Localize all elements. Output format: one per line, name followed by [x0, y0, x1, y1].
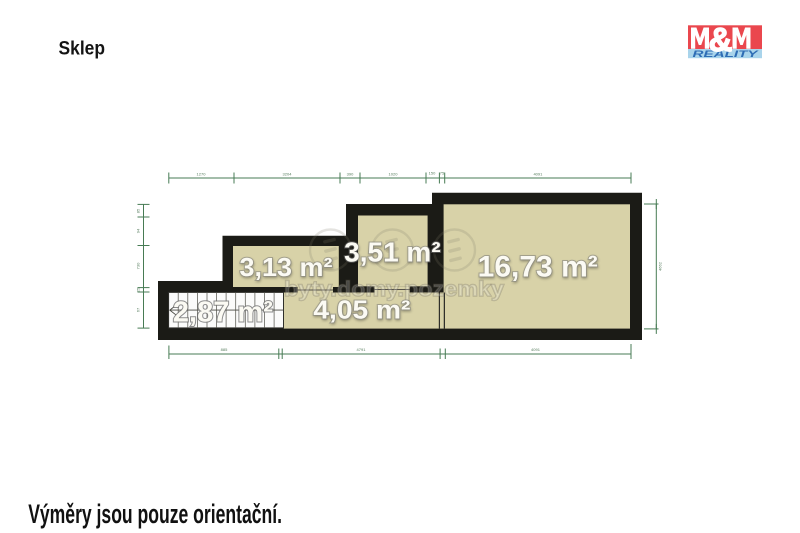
svg-text:730: 730 — [136, 262, 141, 269]
svg-text:Výměry jsou pouze orientační.: Výměry jsou pouze orientační. — [28, 499, 282, 529]
svg-text:4091: 4091 — [533, 172, 543, 177]
svg-text:4091: 4091 — [531, 347, 541, 352]
svg-text:1270: 1270 — [197, 172, 207, 177]
svg-text:390: 390 — [347, 172, 354, 177]
svg-text:&: & — [709, 21, 733, 58]
svg-text:67: 67 — [136, 307, 141, 312]
svg-text:2,87 m²: 2,87 m² — [173, 296, 273, 328]
svg-text:150: 150 — [429, 171, 436, 176]
svg-text:3204: 3204 — [283, 172, 293, 177]
svg-text:4791: 4791 — [357, 347, 367, 352]
svg-text:85: 85 — [136, 208, 141, 213]
svg-text:25: 25 — [136, 287, 141, 292]
svg-text:Sklep: Sklep — [59, 37, 106, 59]
svg-text:3,13 m²: 3,13 m² — [240, 252, 333, 282]
svg-text:4662: 4662 — [658, 261, 663, 271]
svg-text:885: 885 — [221, 347, 228, 352]
svg-text:1020: 1020 — [389, 172, 399, 177]
svg-text:75: 75 — [440, 171, 445, 176]
svg-text:16,73 m²: 16,73 m² — [478, 251, 598, 284]
svg-text:4,05 m²: 4,05 m² — [313, 294, 410, 324]
svg-text:94: 94 — [136, 228, 141, 233]
svg-text:3,51 m²: 3,51 m² — [344, 237, 441, 268]
